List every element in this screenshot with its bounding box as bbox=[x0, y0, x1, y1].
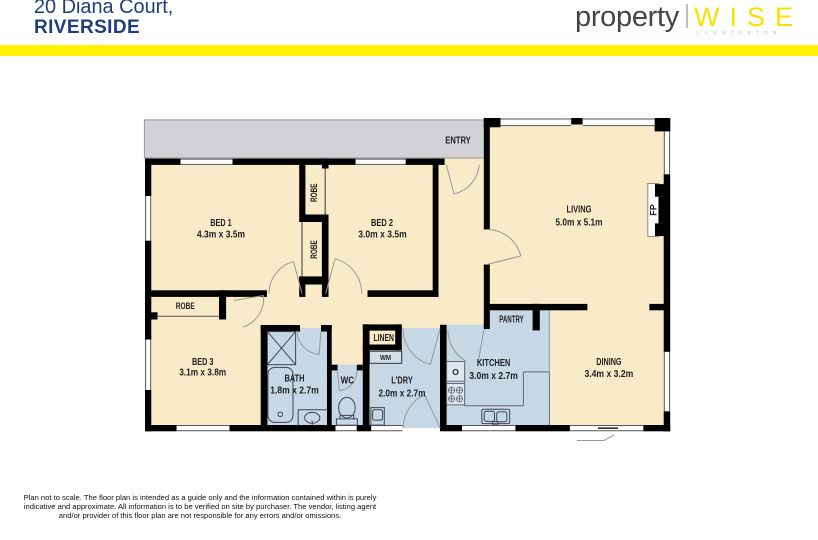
svg-text:BED 2: BED 2 bbox=[371, 217, 393, 229]
svg-text:BATH: BATH bbox=[285, 373, 305, 385]
svg-text:L’DRY: L’DRY bbox=[391, 374, 413, 386]
svg-text:KITCHEN: KITCHEN bbox=[477, 357, 511, 369]
svg-text:WC: WC bbox=[341, 374, 355, 386]
svg-text:BED 3: BED 3 bbox=[192, 356, 214, 368]
svg-text:3.4m x 3.2m: 3.4m x 3.2m bbox=[584, 369, 633, 380]
svg-text:3.0m x 2.7m: 3.0m x 2.7m bbox=[469, 371, 518, 382]
svg-text:WM: WM bbox=[380, 355, 391, 362]
svg-text:ROBE: ROBE bbox=[309, 240, 319, 259]
svg-text:5.0m x 5.1m: 5.0m x 5.1m bbox=[556, 217, 603, 228]
svg-text:2.0m x 2.7m: 2.0m x 2.7m bbox=[379, 389, 426, 400]
svg-text:LINEN: LINEN bbox=[373, 333, 394, 344]
svg-text:3.0m x 3.5m: 3.0m x 3.5m bbox=[358, 229, 406, 240]
svg-text:ENTRY: ENTRY bbox=[445, 135, 471, 146]
svg-text:1.8m x 2.7m: 1.8m x 2.7m bbox=[270, 385, 318, 396]
svg-text:DINING: DINING bbox=[596, 356, 621, 368]
svg-text:BED 1: BED 1 bbox=[210, 217, 232, 229]
svg-text:4.3m x 3.5m: 4.3m x 3.5m bbox=[197, 229, 245, 240]
svg-text:PANTRY: PANTRY bbox=[499, 315, 524, 326]
svg-text:FP: FP bbox=[649, 204, 659, 216]
svg-text:3.1m x 3.8m: 3.1m x 3.8m bbox=[179, 368, 226, 379]
svg-text:LIVING: LIVING bbox=[567, 204, 592, 216]
svg-text:O: O bbox=[452, 367, 459, 377]
svg-text:ROBE: ROBE bbox=[309, 183, 319, 202]
svg-text:ROBE: ROBE bbox=[176, 301, 195, 311]
